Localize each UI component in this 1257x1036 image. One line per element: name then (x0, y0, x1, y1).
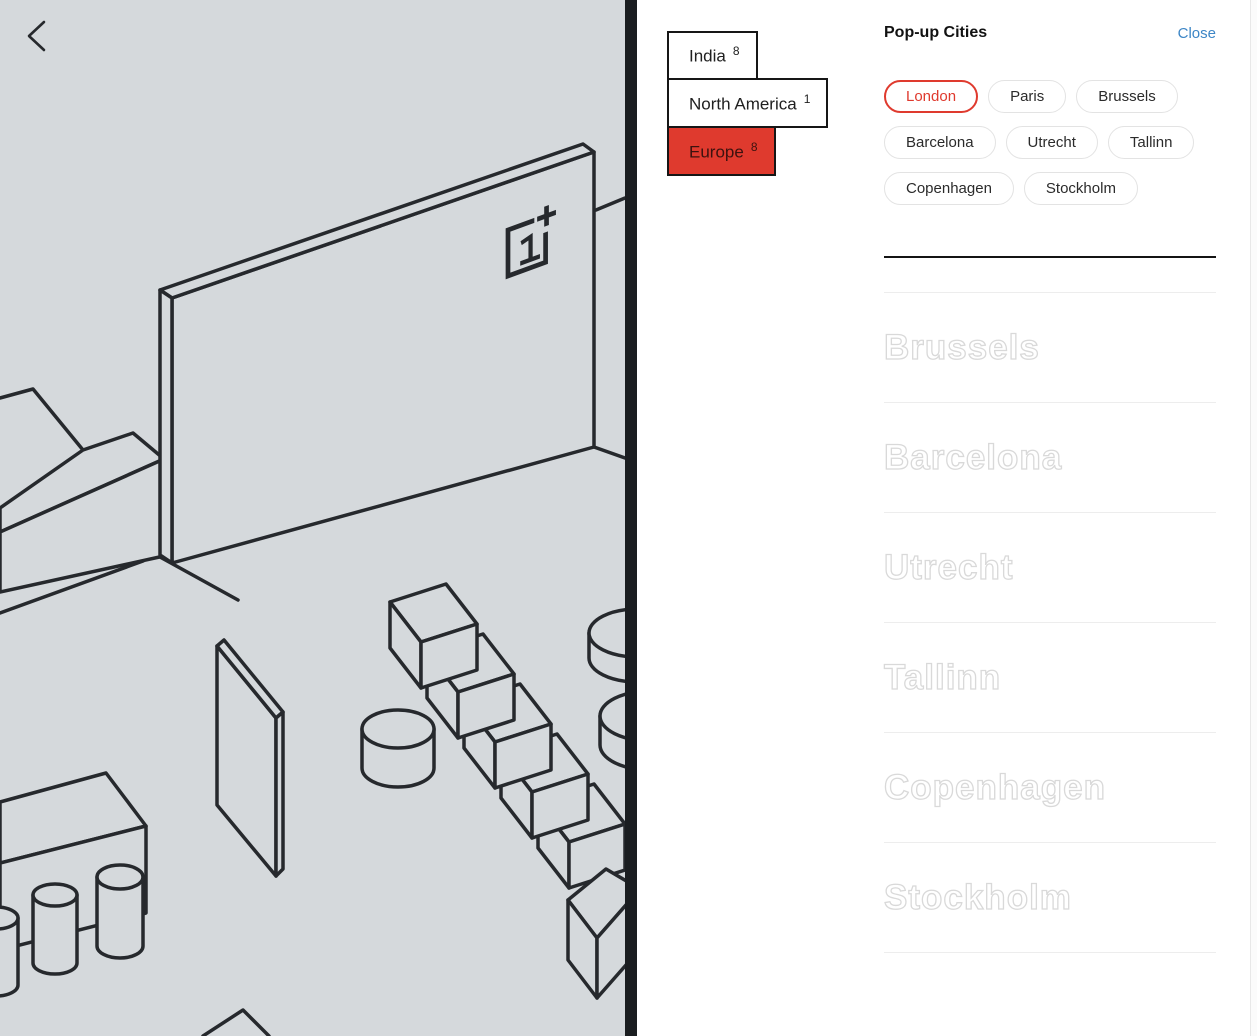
cylinder-right-top (589, 609, 625, 682)
pane-divider (625, 0, 637, 1036)
city-pill-stockholm[interactable]: Stockholm (1024, 172, 1138, 205)
bottom-right-cube (568, 869, 625, 998)
city-list-label: Brussels (884, 328, 1040, 368)
rear-box-lines (0, 389, 83, 450)
cylinder-right-bottom (600, 691, 625, 770)
city-pill-barcelona[interactable]: Barcelona (884, 126, 996, 159)
city-list-item-barcelona[interactable]: Barcelona (884, 403, 1216, 513)
popup-cities-screen: India8North America1Europe8 Pop-up Citie… (0, 0, 1257, 1036)
cylinder-middle (362, 710, 434, 787)
city-pill-tallinn[interactable]: Tallinn (1108, 126, 1195, 159)
back-chevron-icon (20, 14, 60, 58)
bg-line-bottom (594, 447, 625, 458)
city-pill-group: LondonParisBrusselsBarcelonaUtrechtTalli… (884, 80, 1229, 205)
panel-scrollbar[interactable] (1250, 0, 1257, 1036)
city-list-label: Barcelona (884, 438, 1062, 478)
cities-panel: India8North America1Europe8 Pop-up Citie… (637, 0, 1257, 1036)
isometric-scene (0, 0, 625, 1036)
city-pill-utrecht[interactable]: Utrecht (1006, 126, 1098, 159)
close-button[interactable]: Close (1178, 25, 1216, 42)
region-count-badge: 1 (804, 92, 811, 106)
page-title: Pop-up Cities (884, 24, 987, 42)
region-label: Europe (689, 142, 744, 161)
city-list-item-stockholm[interactable]: Stockholm (884, 843, 1216, 953)
city-pill-brussels[interactable]: Brussels (1076, 80, 1178, 113)
city-pill-paris[interactable]: Paris (988, 80, 1066, 113)
region-count-badge: 8 (733, 44, 740, 58)
region-count-badge: 8 (751, 140, 758, 154)
back-button[interactable] (20, 14, 60, 58)
region-button-north-america[interactable]: North America1 (667, 78, 828, 128)
illustration-canvas (0, 0, 625, 1036)
region-button-india[interactable]: India8 (667, 31, 758, 80)
city-pill-london[interactable]: London (884, 80, 978, 113)
region-selector: India8North America1Europe8 (667, 31, 828, 176)
city-list-item-copenhagen[interactable]: Copenhagen (884, 733, 1216, 843)
thin-panel (217, 640, 283, 876)
region-label: North America (689, 94, 797, 113)
region-button-europe[interactable]: Europe8 (667, 126, 776, 176)
bottom-peak (203, 1010, 269, 1036)
city-list: BrusselsBarcelonaUtrechtTallinnCopenhage… (884, 258, 1216, 953)
city-list-label: Stockholm (884, 878, 1072, 918)
region-label: India (689, 47, 726, 66)
bg-line-top (596, 198, 625, 210)
city-list-item-tallinn[interactable]: Tallinn (884, 623, 1216, 733)
city-list-label: Copenhagen (884, 768, 1106, 808)
city-list-item-utrecht[interactable]: Utrecht (884, 513, 1216, 623)
city-pill-copenhagen[interactable]: Copenhagen (884, 172, 1014, 205)
billboard (160, 144, 594, 563)
city-list-label: Utrecht (884, 548, 1014, 588)
panel-header: Pop-up Cities Close (884, 24, 1216, 42)
city-list-item-brussels[interactable]: Brussels (884, 293, 1216, 403)
city-list-spacer (884, 258, 1216, 293)
city-list-label: Tallinn (884, 658, 1001, 698)
